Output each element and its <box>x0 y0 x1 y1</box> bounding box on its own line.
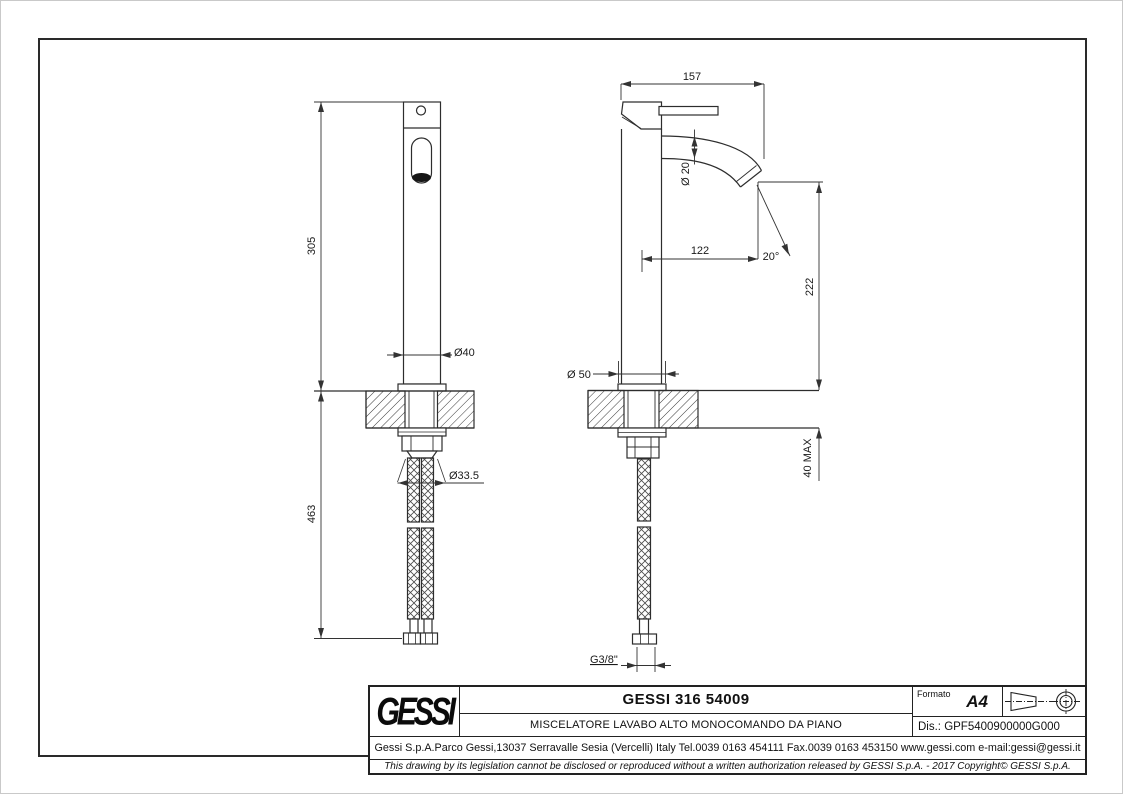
front-view-dimensions <box>314 102 484 639</box>
base-flange-front <box>398 384 446 391</box>
format-label: Formato <box>917 689 951 699</box>
dim-d33-5: Ø33.5 <box>449 470 479 482</box>
countertop-hatch-left-side <box>588 391 624 429</box>
dim-40max: 40 MAX <box>802 438 814 478</box>
company-info: Gessi S.p.A.Parco Gessi,13037 Serravalle… <box>370 737 1085 760</box>
faucet-body-front <box>404 102 441 384</box>
spout-outlet-front <box>412 173 431 182</box>
disclaimer: This drawing by its legislation cannot b… <box>370 760 1085 773</box>
countertop-hatch-right-side <box>659 391 698 429</box>
drawing-sheet: 305 463 Ø40 Ø33.5 <box>0 0 1123 794</box>
dim-g38: G3/8" <box>590 654 618 666</box>
dim-d50: Ø 50 <box>567 369 591 381</box>
format-value: A4 <box>966 692 988 712</box>
dim-305: 305 <box>306 237 318 255</box>
base-flange-side <box>618 384 666 391</box>
flexible-hose-side <box>633 459 657 644</box>
countertop-hatch-left <box>366 391 405 428</box>
dim-d40: Ø40 <box>454 347 475 359</box>
gessi-logo-cell: GESSI <box>370 687 460 736</box>
title-block: GESSI GESSI 316 54009 MISCELATORE LAVABO… <box>368 685 1087 775</box>
side-view <box>588 102 819 644</box>
front-view <box>314 102 474 644</box>
product-code: GESSI 316 54009 <box>623 691 750 708</box>
dim-d20: Ø 20 <box>680 162 692 186</box>
countertop-hatch-right <box>438 391 475 428</box>
format-cell: Formato A4 <box>913 687 1003 716</box>
flexible-hoses-front <box>404 458 438 644</box>
side-view-dimensions <box>593 81 823 672</box>
technical-drawing: 305 463 Ø40 Ø33.5 <box>1 1 1123 794</box>
locknut-side <box>627 437 659 458</box>
dim-20deg: 20° <box>763 251 780 263</box>
drawing-number: Dis.: GPF5400900000G000 <box>913 717 1085 736</box>
dim-122: 122 <box>691 245 709 257</box>
projection-symbol-cell <box>1003 687 1085 716</box>
locknut-front <box>402 436 442 451</box>
dim-463: 463 <box>306 505 318 523</box>
handle-cap-side <box>622 102 662 129</box>
handle-lever-side <box>659 107 718 116</box>
product-description: MISCELATORE LAVABO ALTO MONOCOMANDO DA P… <box>530 719 842 731</box>
first-angle-projection-icon <box>1004 688 1084 715</box>
dim-222: 222 <box>804 278 816 296</box>
dim-157: 157 <box>683 71 701 83</box>
gessi-logo: GESSI <box>376 692 452 731</box>
